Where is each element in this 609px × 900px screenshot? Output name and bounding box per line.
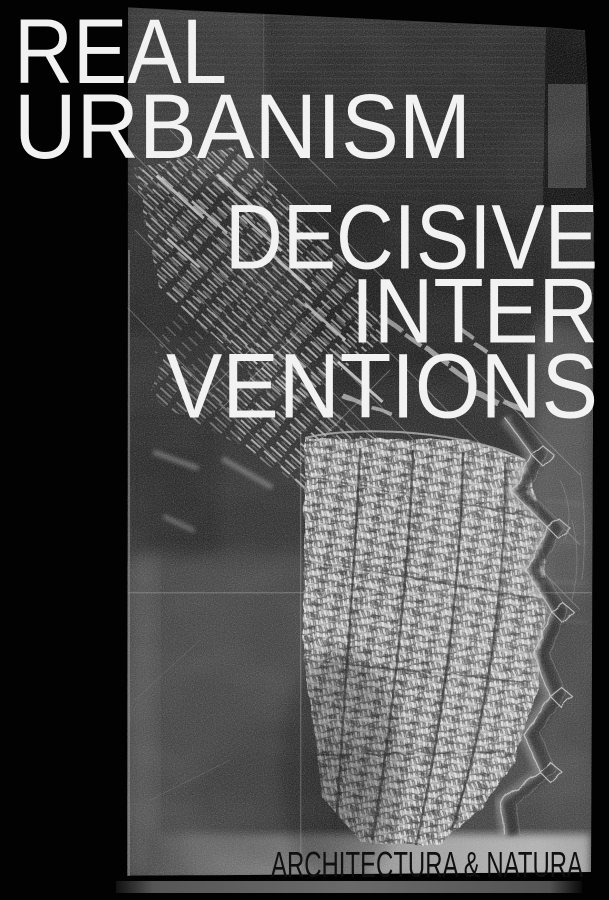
svg-text:ARCHITECTURA & NATURA: ARCHITECTURA & NATURA — [271, 844, 583, 885]
svg-text:URBANISM: URBANISM — [14, 76, 471, 178]
svg-text:VENTIONS: VENTIONS — [166, 336, 598, 438]
